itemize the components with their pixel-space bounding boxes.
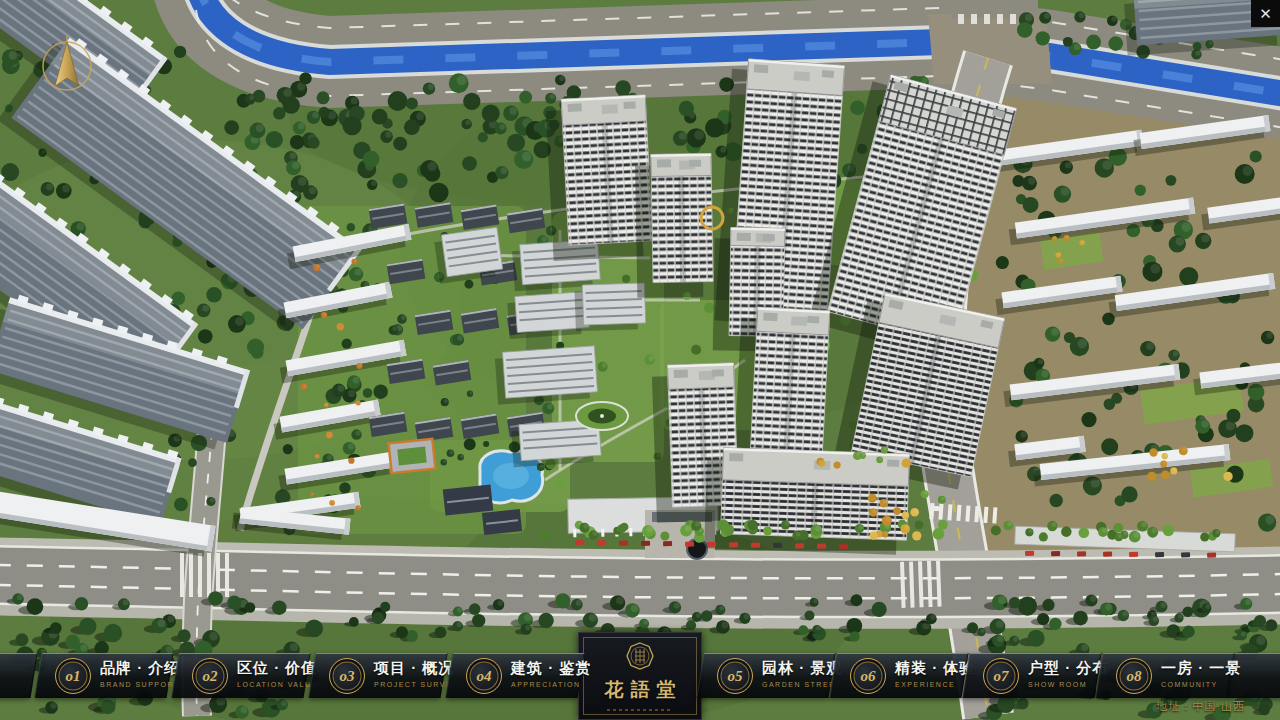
nav-item-label-zh: 区位 · 价值 (237, 659, 307, 678)
nav-item-labels: 户型 · 分布 SHOW ROOM (1028, 659, 1098, 688)
nav-item-number: o3 (340, 668, 355, 685)
nav-item-project[interactable]: o3 项目 · 概况 PROJECT SURVEY (312, 653, 444, 698)
nav-item-label-en: PROJECT SURVEY (374, 681, 444, 688)
nav-item-number-badge: o7 (983, 658, 1019, 694)
nav-item-number-badge: o8 (1116, 658, 1152, 694)
nav-item-brand[interactable]: o1 品牌 · 介绍 BRAND SUPPORT (38, 653, 170, 698)
nav-item-labels: 一房 · 一景 COMMUNITY (1161, 659, 1231, 688)
nav-item-number: o2 (203, 668, 218, 685)
compass-icon (38, 34, 98, 98)
nav-item-units[interactable]: o7 户型 · 分布 SHOW ROOM (966, 653, 1098, 698)
site-map-render[interactable] (0, 0, 1280, 720)
nav-item-label-en: COMMUNITY (1161, 681, 1231, 688)
nav-item-label-zh: 项目 · 概况 (374, 659, 444, 678)
bottom-navigation: 花語堂 地址：中国·山西 o1 品牌 · 介绍 BRAND SUPPORT o2… (0, 653, 1280, 699)
nav-item-label-en: EXPERIENCE (895, 681, 965, 688)
logo-seal-icon (625, 640, 655, 672)
nav-item-label-en: SHOW ROOM (1028, 681, 1098, 688)
presentation-stage: ✕ 花語堂 地址：中国·山西 o1 品牌 · 介绍 BRAND SUPPORT (0, 0, 1280, 720)
nav-item-number-badge: o1 (55, 658, 91, 694)
nav-item-views[interactable]: o8 一房 · 一景 COMMUNITY (1099, 653, 1231, 698)
nav-item-number: o5 (728, 668, 743, 685)
nav-item-label-en: APPRECIATION (511, 681, 581, 688)
nav-item-architecture[interactable]: o4 建筑 · 鉴赏 APPRECIATION (449, 653, 581, 698)
nav-item-number: o1 (66, 668, 81, 685)
nav-item-number: o4 (477, 668, 492, 685)
nav-item-labels: 项目 · 概况 PROJECT SURVEY (374, 659, 444, 688)
nav-filler-left (0, 653, 34, 698)
nav-item-labels: 建筑 · 鉴赏 APPRECIATION (511, 659, 581, 688)
nav-item-number-badge: o2 (192, 658, 228, 694)
nav-item-label-zh: 户型 · 分布 (1028, 659, 1098, 678)
nav-item-number: o6 (861, 668, 876, 685)
nav-item-number-badge: o4 (466, 658, 502, 694)
nav-item-number: o7 (994, 668, 1009, 685)
nav-item-number-badge: o5 (717, 658, 753, 694)
project-logo: 花語堂 (578, 632, 702, 720)
nav-item-number: o8 (1127, 668, 1142, 685)
nav-item-label-zh: 精装 · 体验 (895, 659, 965, 678)
nav-item-label-en: LOCATION VALUE (237, 681, 307, 688)
nav-item-labels: 区位 · 价值 LOCATION VALUE (237, 659, 307, 688)
nav-item-label-zh: 品牌 · 介绍 (100, 659, 170, 678)
nav-item-label-zh: 园林 · 景观 (762, 659, 832, 678)
nav-item-label-zh: 建筑 · 鉴赏 (511, 659, 581, 678)
nav-item-number-badge: o6 (850, 658, 886, 694)
logo-tagline-line (607, 709, 673, 711)
nav-item-number-badge: o3 (329, 658, 365, 694)
nav-item-garden[interactable]: o5 园林 · 景观 GARDEN STREET (700, 653, 832, 698)
nav-item-labels: 园林 · 景观 GARDEN STREET (762, 659, 832, 688)
nav-item-labels: 精装 · 体验 EXPERIENCE (895, 659, 965, 688)
nav-item-label-zh: 一房 · 一景 (1161, 659, 1231, 678)
nav-item-location[interactable]: o2 区位 · 价值 LOCATION VALUE (175, 653, 307, 698)
nav-item-decor[interactable]: o6 精装 · 体验 EXPERIENCE (833, 653, 965, 698)
logo-title: 花語堂 (579, 677, 701, 703)
nav-item-label-en: BRAND SUPPORT (100, 681, 170, 688)
project-address: 地址：中国·山西 (1156, 699, 1245, 714)
close-button[interactable]: ✕ (1251, 0, 1280, 27)
nav-item-labels: 品牌 · 介绍 BRAND SUPPORT (100, 659, 170, 688)
nav-item-label-en: GARDEN STREET (762, 681, 832, 688)
